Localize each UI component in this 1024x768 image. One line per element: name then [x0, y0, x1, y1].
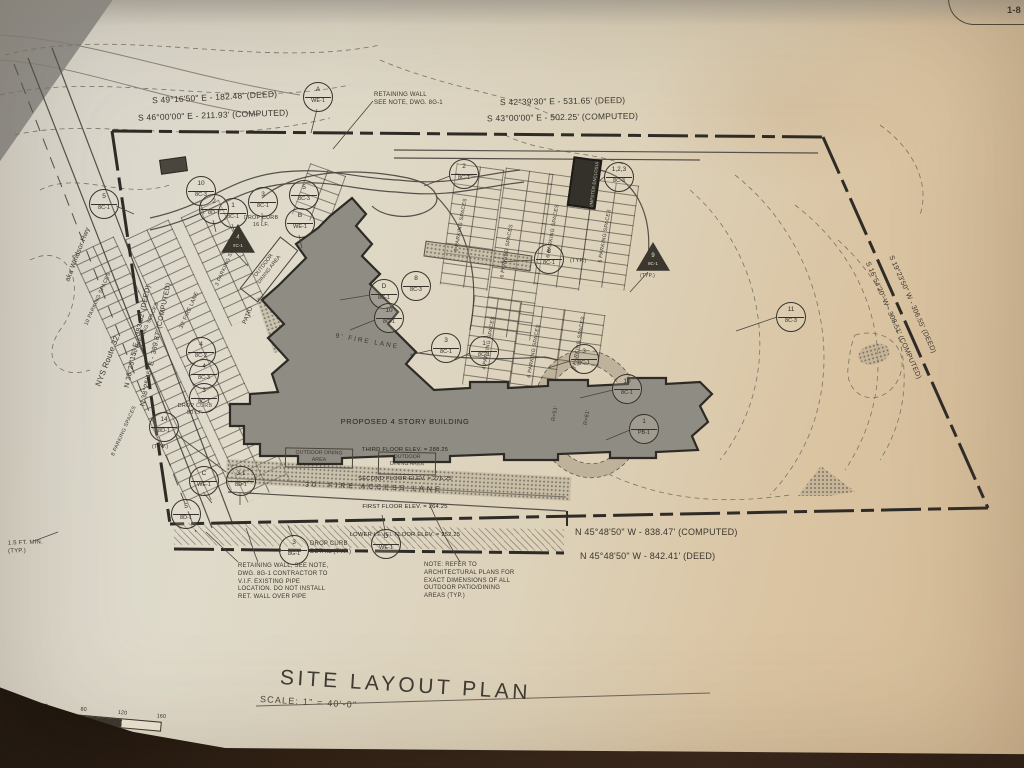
- outdoor-dining-area-1: OUTDOOR DINING AREA: [285, 447, 353, 468]
- callout-bubble: 1PB-1: [629, 414, 659, 444]
- retaining-wall-note-top: RETAINING WALL SEE NOTE, DWG. 8G-1: [374, 92, 443, 108]
- callout-number: 10: [187, 180, 215, 187]
- callout-sheet-ref: WE-1: [190, 482, 218, 488]
- callout-number: D: [370, 283, 398, 290]
- callout-sheet-ref: 8C-3: [290, 196, 318, 202]
- callout-bubble: 28D-1: [199, 194, 229, 224]
- callout-number: 1: [470, 340, 498, 347]
- typ-note: (TYP.): [152, 444, 168, 451]
- callout-sheet-ref: 8D-1: [150, 428, 178, 434]
- callout-sheet-ref: WE-1: [304, 98, 332, 104]
- callout-number: 4: [187, 341, 215, 348]
- callout-bubble: CWE-1: [189, 466, 219, 496]
- callout-sheet-ref: WE-1: [372, 545, 400, 551]
- site-layout-plan-photo: PROPOSED 4 STORY BUILDING THIRD FLOOR EL…: [0, 0, 1024, 768]
- callout-sheet-ref: WE-1: [286, 224, 314, 230]
- callout-number: 11: [777, 306, 805, 313]
- callout-sheet-ref: PB-1: [630, 430, 658, 436]
- typ-note: (TYP.): [570, 258, 586, 265]
- callout-number: 1: [630, 418, 658, 425]
- building-floor-elev: LOWER LEVEL FLOOR ELEV. = 252.25: [300, 532, 510, 540]
- callout-sheet-ref: 8D-1: [172, 515, 200, 521]
- callout-number: 3: [280, 539, 308, 546]
- callout-number: C: [190, 470, 218, 477]
- callout-number: D: [372, 533, 400, 540]
- callout-number: 3,1: [227, 470, 255, 477]
- callout-bubble: 108C-1: [374, 303, 404, 333]
- callout-sheet-ref: 8C-1: [90, 205, 118, 211]
- callout-number: 2: [200, 198, 228, 205]
- callout-bubble: DWE-1: [371, 529, 401, 559]
- callout-sheet-ref: 8C-1: [613, 390, 641, 396]
- callout-bubble: 38C-1: [248, 187, 278, 217]
- min-offset-note: 1.5 FT. MIN. (TYP.): [8, 539, 44, 556]
- callout-number: B: [286, 212, 314, 219]
- callout-bubble: BWE-1: [285, 208, 315, 238]
- callout-sheet-ref: 8G-1: [280, 551, 308, 557]
- callout-number: 3: [190, 387, 218, 394]
- callout-sheet-ref: 8D-1: [200, 210, 228, 216]
- callout-sheet-ref: 8C-1: [190, 399, 218, 405]
- bearing-top-right-deed: S 42°39'30" E - 531.65' (DEED): [500, 95, 625, 108]
- callout-number: 1,2,3: [605, 166, 633, 173]
- callout-bubble: 38G-1: [279, 535, 309, 565]
- callout-sheet-ref: 8C-3: [190, 375, 218, 381]
- callout-bubble: 58C-3: [289, 180, 319, 210]
- callout-sheet-ref: 8C-2: [187, 353, 215, 359]
- bearing-bottom-computed: N 45°48'50" W - 838.47' (COMPUTED): [575, 527, 738, 539]
- callout-number: 3: [432, 337, 460, 344]
- callout-bubble: 3,18D-1: [226, 466, 256, 496]
- callout-number: A: [304, 86, 332, 93]
- callout-bubble: AWE-1: [303, 82, 333, 112]
- outdoor-dining-area-2: OUTDOOR DINING AREA: [378, 451, 436, 475]
- callout-bubble: 38C-1: [431, 333, 461, 363]
- callout-number: 2: [450, 163, 478, 170]
- sheet-number: 1-8: [1007, 5, 1021, 16]
- callout-sheet-ref: 8C-3: [605, 178, 633, 184]
- callout-number: 3: [249, 191, 277, 198]
- architectural-note: NOTE: REFER TO ARCHITECTURAL PLANS FOR E…: [424, 562, 514, 601]
- callout-sheet-ref: 8C-1: [249, 203, 277, 209]
- callout-sheet-ref: 8C-3: [777, 318, 805, 324]
- callout-bubble: 1,2,38C-3: [604, 162, 634, 192]
- callout-sheet-ref: 8C-1: [432, 349, 460, 355]
- callout-number: 10: [375, 307, 403, 314]
- callout-number: 10: [613, 378, 641, 385]
- callout-number: 8: [402, 275, 430, 282]
- callout-number: 4: [190, 363, 218, 370]
- callout-sheet-ref: 8C-3: [402, 287, 430, 293]
- callout-bubble: 58C-1: [89, 189, 119, 219]
- callout-number: 5: [172, 503, 200, 510]
- building-floor-elev: FIRST FLOOR ELEV. = 264.25: [300, 504, 510, 512]
- callout-bubble: 38C-1: [189, 383, 219, 413]
- callout-sheet-ref: 8C-1: [450, 175, 478, 181]
- callout-bubble: 118C-3: [776, 302, 806, 332]
- bearing-bottom-deed: N 45°48'50" W - 842.41' (DEED): [580, 551, 715, 563]
- callout-bubble: 58D-1: [171, 499, 201, 529]
- drop-curb-detail-note: DROP CURB DETAIL (TYP.): [310, 541, 351, 557]
- callout-number: 5: [90, 193, 118, 200]
- callout-bubble: 148D-1: [149, 412, 179, 442]
- callout-sheet-ref: 8C-1: [370, 295, 398, 301]
- callout-bubble: 108C-1: [612, 374, 642, 404]
- building-title: PROPOSED 4 STORY BUILDING: [300, 417, 510, 427]
- callout-sheet-ref: 8D-1: [227, 482, 255, 488]
- typ-note: (TYP.): [640, 273, 655, 280]
- callout-number: 5: [290, 184, 318, 191]
- retaining-wall-note-bottom: RETAINING WALL, SEE NOTE, DWG. 8G-1 CONT…: [238, 563, 328, 602]
- callout-number: 14: [150, 416, 178, 423]
- callout-sheet-ref: 8C-1: [375, 319, 403, 325]
- building-label-block: PROPOSED 4 STORY BUILDING THIRD FLOOR EL…: [300, 396, 510, 561]
- callout-bubble: 88C-3: [401, 271, 431, 301]
